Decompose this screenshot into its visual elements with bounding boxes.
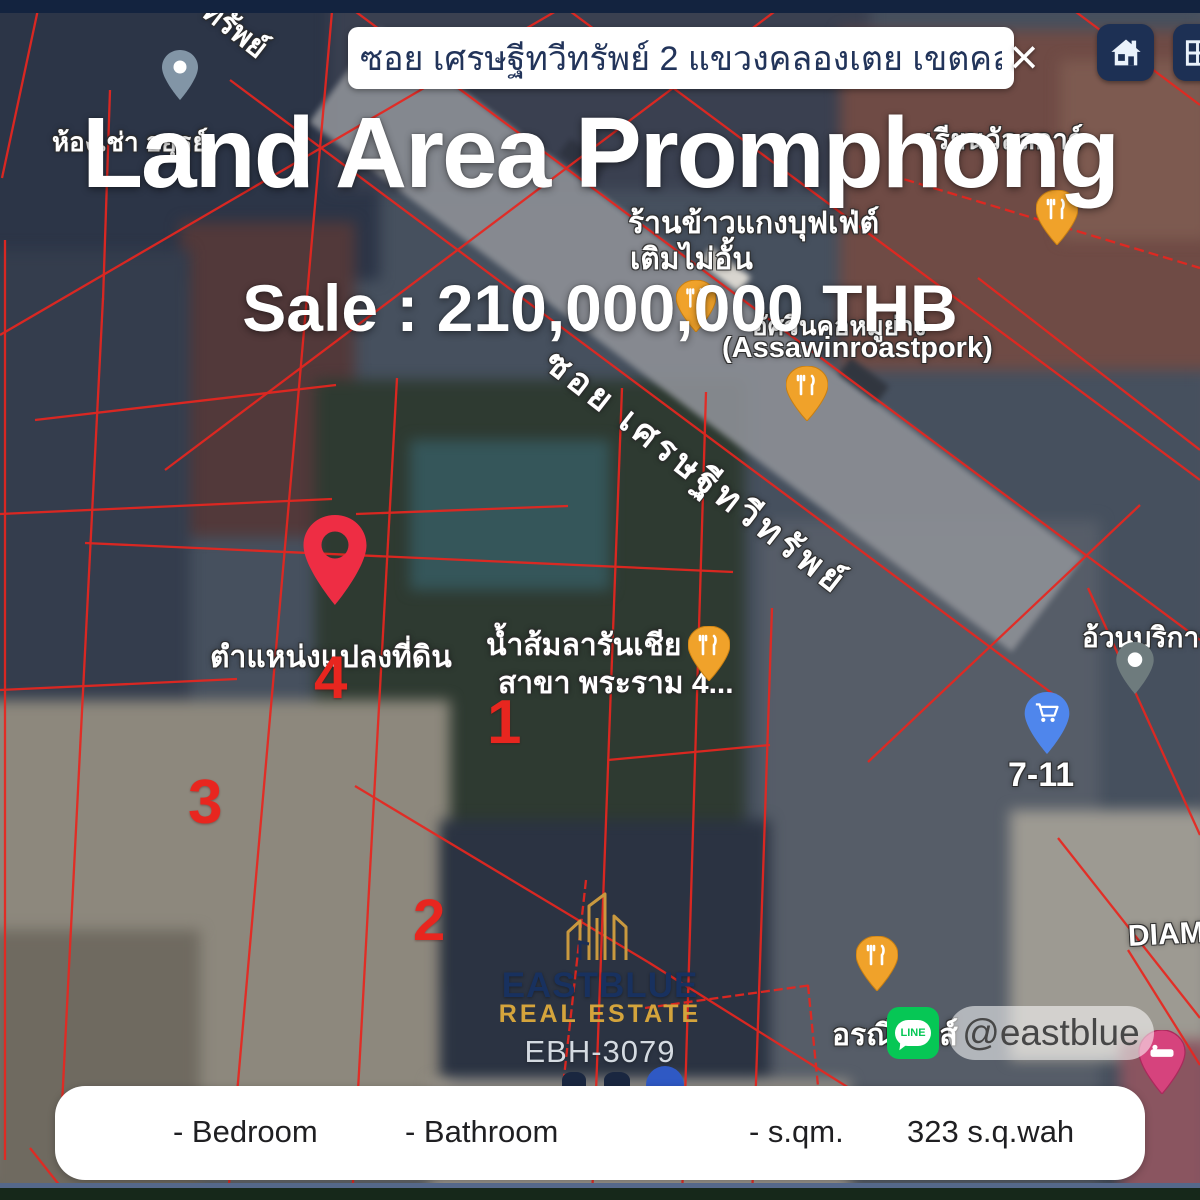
- area-wah-value: 323 s.q.wah: [907, 1114, 1074, 1150]
- grid-button[interactable]: [1173, 24, 1200, 81]
- label-diamond: DIAM: [1127, 916, 1200, 954]
- area-sqm-value: - s.qm.: [749, 1114, 844, 1150]
- close-icon[interactable]: ×: [1000, 28, 1048, 88]
- bedroom-value: - Bedroom: [173, 1114, 318, 1150]
- plot-number-4: 4: [314, 648, 347, 708]
- line-app-label: LINE: [895, 1020, 931, 1046]
- top-navy-strip: [0, 0, 1200, 13]
- restaurant-pin-juice[interactable]: [688, 626, 730, 681]
- home-button[interactable]: [1097, 24, 1154, 81]
- listing-id: EBH-3079: [524, 1034, 675, 1070]
- search-bar[interactable]: [348, 27, 1014, 89]
- line-handle-text: @eastblue: [962, 1012, 1139, 1054]
- gray-poi-pin-top-left[interactable]: [162, 50, 198, 100]
- listing-price: Sale : 210,000,000 THB: [242, 270, 957, 346]
- line-handle-badge: @eastblue: [948, 1006, 1154, 1060]
- restaurant-pin-bottom[interactable]: [856, 936, 898, 991]
- home-icon: [1108, 35, 1144, 71]
- search-input[interactable]: [358, 38, 1004, 79]
- gray-poi-pin-right[interactable]: [1116, 642, 1154, 694]
- listing-title: Land Area Promphong: [82, 96, 1118, 211]
- eastblue-logo-icon: [556, 892, 646, 964]
- land-listing-map-screenshot: ห้องเช่า อยุธย์ ทรัพย์ เรียนวัลลการ์ ร้า…: [0, 0, 1200, 1200]
- label-seven-eleven: 7-11: [1008, 756, 1074, 795]
- store-pin-711[interactable]: [1024, 692, 1070, 754]
- bottom-strip-green: [0, 1188, 1200, 1200]
- grid-icon: [1184, 35, 1200, 71]
- plot-number-3: 3: [188, 772, 222, 834]
- property-location-pin[interactable]: [302, 515, 368, 605]
- bathroom-value: - Bathroom: [405, 1114, 558, 1150]
- plot-number-1: 1: [487, 692, 521, 754]
- line-app-icon[interactable]: LINE: [887, 1007, 939, 1059]
- eastblue-tagline: REAL ESTATE: [499, 1000, 701, 1029]
- restaurant-pin-road[interactable]: [786, 366, 828, 421]
- property-details-bar: - Bedroom - Bathroom - s.qm. 323 s.q.wah: [55, 1086, 1145, 1180]
- plot-number-2: 2: [413, 892, 445, 950]
